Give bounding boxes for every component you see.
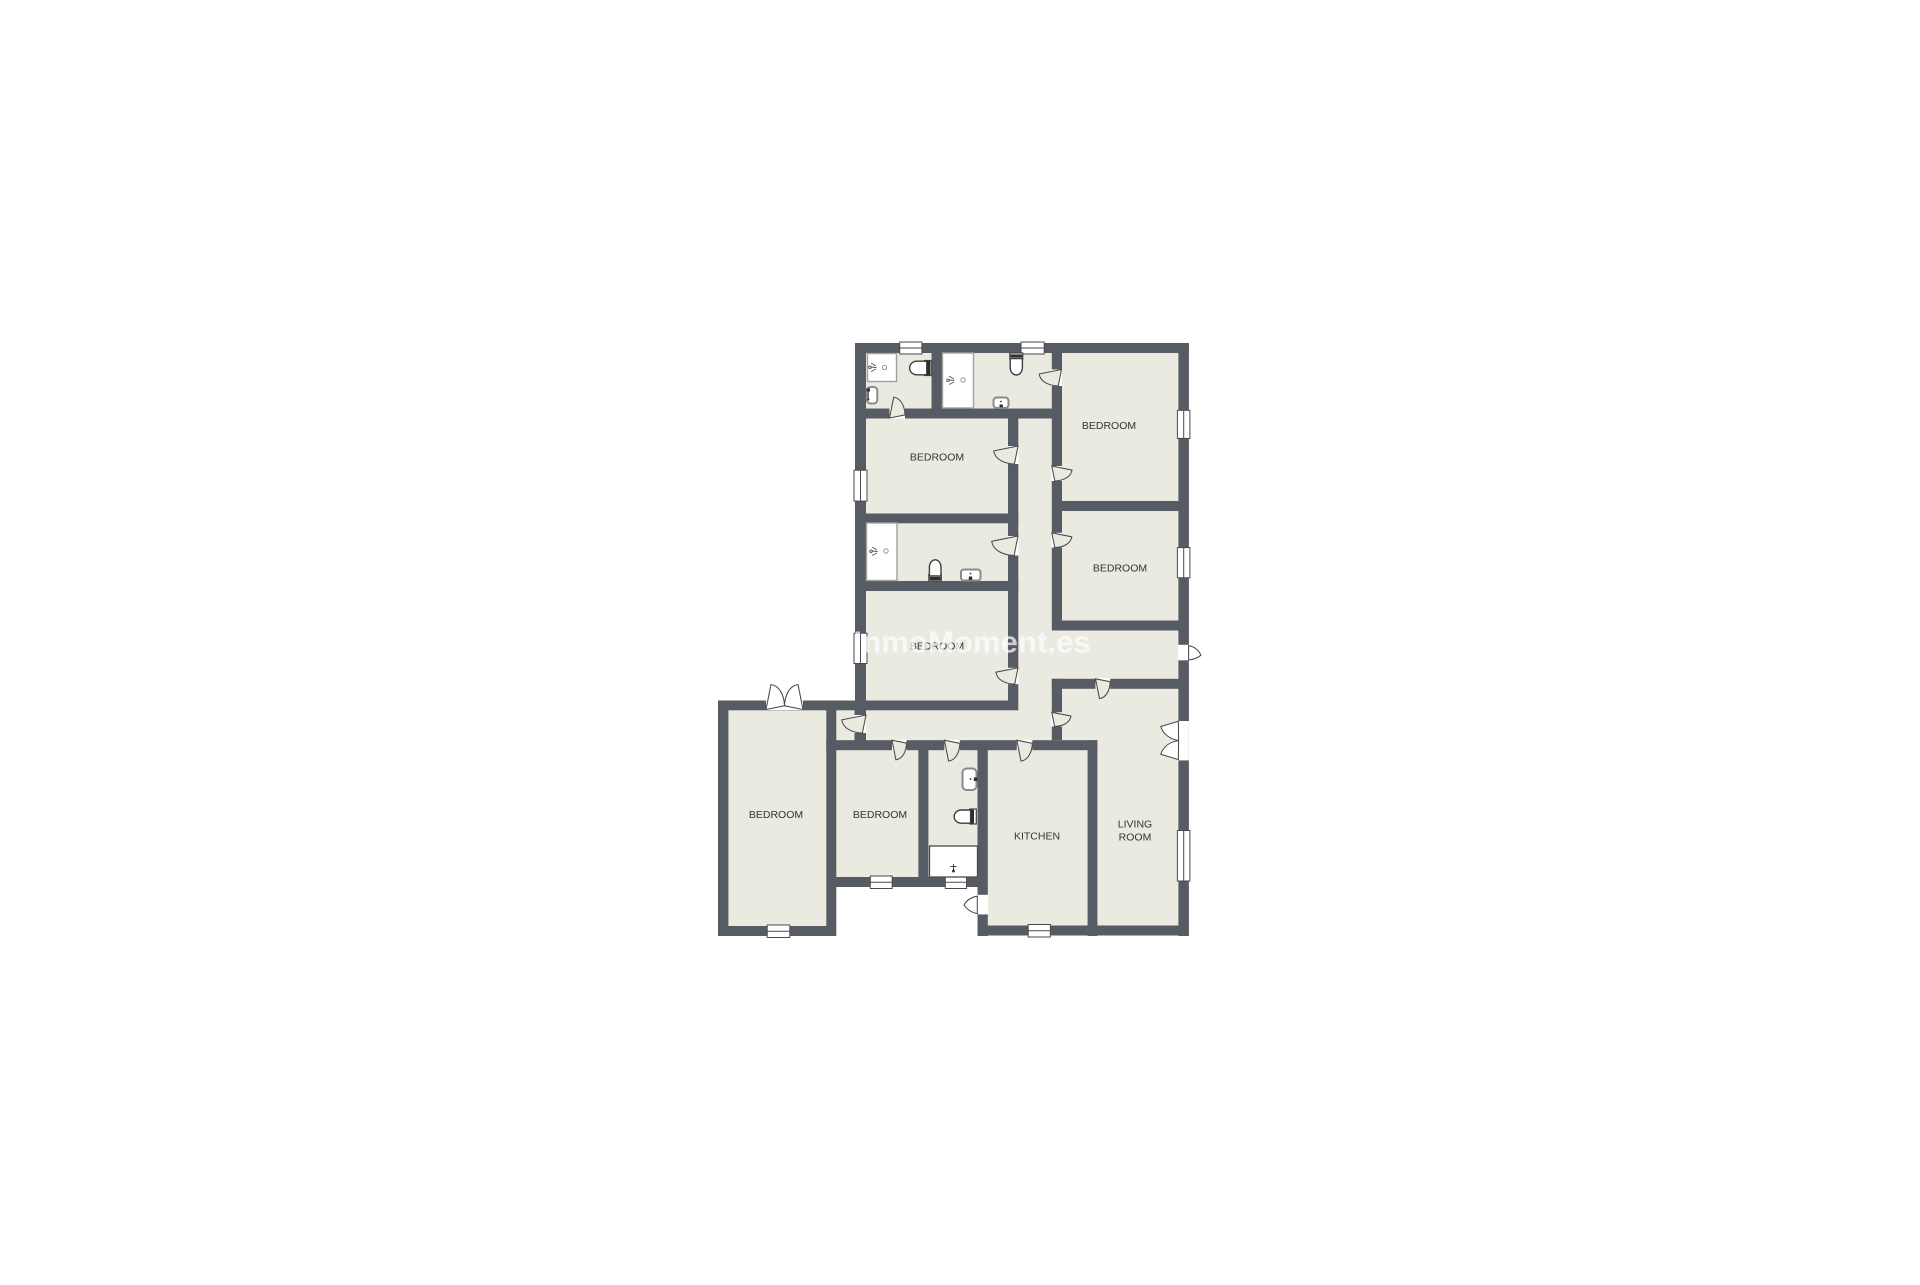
svg-text:BEDROOM: BEDROOM (853, 809, 907, 821)
svg-text:LIVING: LIVING (1118, 819, 1152, 831)
svg-text:ROOM: ROOM (1119, 832, 1152, 844)
svg-text:KITCHEN: KITCHEN (1014, 830, 1060, 842)
svg-text:BEDROOM: BEDROOM (749, 809, 803, 821)
svg-text:BEDROOM: BEDROOM (1082, 420, 1136, 432)
svg-text:BEDROOM: BEDROOM (910, 452, 964, 464)
svg-text:BEDROOM: BEDROOM (1093, 563, 1147, 575)
svg-text:InmoMoment.es: InmoMoment.es (854, 624, 1091, 659)
